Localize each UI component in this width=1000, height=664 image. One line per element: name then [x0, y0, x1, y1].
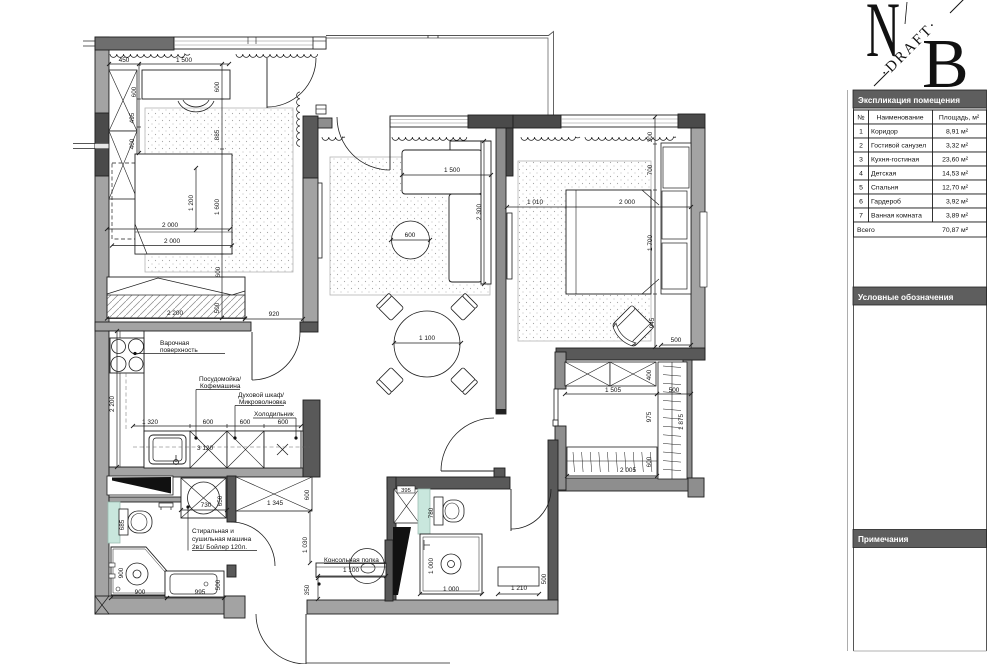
svg-text:Экспликация помещения: Экспликация помещения: [858, 96, 960, 105]
svg-text:2 000: 2 000: [619, 199, 635, 206]
svg-text:Площадь, м²: Площадь, м²: [939, 115, 980, 122]
svg-text:1: 1: [859, 129, 863, 136]
svg-text:600: 600: [278, 419, 289, 426]
svg-text:1 320: 1 320: [142, 419, 158, 426]
svg-text:600: 600: [240, 419, 251, 426]
svg-text:500: 500: [669, 387, 680, 394]
svg-text:2 200: 2 200: [109, 396, 116, 412]
svg-text:2 300: 2 300: [476, 204, 483, 220]
svg-text:1 500: 1 500: [176, 57, 192, 64]
svg-text:Кофемашина: Кофемашина: [200, 383, 241, 390]
svg-text:1 000: 1 000: [443, 586, 459, 593]
svg-text:Микроволновка: Микроволновка: [239, 399, 286, 406]
svg-text:1 030: 1 030: [302, 537, 309, 553]
svg-text:1 345: 1 345: [267, 500, 283, 507]
svg-text:2 000: 2 000: [162, 222, 178, 229]
svg-text:600: 600: [215, 266, 222, 277]
svg-text:730: 730: [201, 502, 212, 509]
svg-text:7: 7: [859, 213, 863, 220]
svg-text:400: 400: [646, 369, 653, 380]
svg-text:995: 995: [195, 589, 206, 596]
svg-text:1 000: 1 000: [428, 558, 435, 574]
svg-text:500: 500: [214, 302, 221, 313]
svg-text:700: 700: [647, 164, 654, 175]
svg-text:600: 600: [405, 232, 416, 239]
svg-text:600: 600: [214, 81, 221, 92]
svg-text:8,91 м²: 8,91 м²: [946, 129, 969, 136]
svg-text:3,32 м²: 3,32 м²: [946, 143, 969, 150]
svg-text:5: 5: [859, 185, 863, 192]
svg-text:2в1/ Бойлер 120л.: 2в1/ Бойлер 120л.: [192, 543, 247, 551]
svg-text:Гостивой санузел: Гостивой санузел: [871, 142, 926, 150]
svg-text:685: 685: [119, 519, 126, 530]
svg-text:2: 2: [859, 143, 863, 150]
svg-text:2 000: 2 000: [164, 238, 180, 245]
svg-text:6: 6: [859, 199, 863, 206]
svg-text:Спальня: Спальня: [871, 185, 899, 192]
svg-text:395: 395: [401, 488, 411, 494]
svg-text:920: 920: [269, 311, 280, 318]
svg-text:300: 300: [647, 131, 654, 142]
svg-text:600: 600: [304, 489, 311, 500]
svg-text:12,70 м²: 12,70 м²: [942, 185, 969, 192]
svg-text:Консольная полка: Консольная полка: [324, 557, 379, 564]
svg-text:Кухня-гостиная: Кухня-гостиная: [871, 157, 919, 164]
svg-text:Духовой шкаф/: Духовой шкаф/: [238, 391, 284, 399]
svg-text:600: 600: [203, 419, 214, 426]
svg-text:780: 780: [428, 507, 435, 518]
svg-text:14,53 м²: 14,53 м²: [942, 171, 969, 178]
svg-text:500: 500: [671, 337, 682, 344]
svg-text:495: 495: [129, 112, 136, 123]
svg-text:2 200: 2 200: [167, 310, 183, 317]
svg-text:2 005: 2 005: [620, 467, 636, 474]
svg-text:650: 650: [217, 495, 224, 506]
svg-text:1 010: 1 010: [527, 199, 543, 206]
svg-text:Варочная: Варочная: [160, 340, 190, 347]
svg-text:70,87 м²: 70,87 м²: [942, 227, 969, 234]
svg-text:3 120: 3 120: [197, 445, 213, 452]
svg-text:600: 600: [646, 456, 653, 467]
svg-text:№: №: [857, 115, 864, 122]
svg-text:500: 500: [215, 579, 222, 590]
svg-text:885: 885: [214, 129, 221, 140]
svg-text:Ванная комната: Ванная комната: [871, 213, 922, 220]
svg-text:Примечания: Примечания: [858, 535, 909, 544]
svg-text:Гардероб: Гардероб: [871, 198, 901, 206]
svg-text:Наименование: Наименование: [876, 115, 923, 122]
svg-text:Всего: Всего: [857, 227, 875, 234]
svg-text:Коридор: Коридор: [871, 129, 898, 136]
svg-text:900: 900: [135, 589, 146, 596]
svg-text:450: 450: [119, 57, 130, 64]
svg-text:3,89 м²: 3,89 м²: [946, 213, 969, 220]
svg-text:1 700: 1 700: [647, 235, 654, 251]
svg-text:3: 3: [859, 157, 863, 164]
svg-text:975: 975: [646, 411, 653, 422]
svg-text:1 100: 1 100: [419, 335, 435, 342]
svg-text:4: 4: [859, 171, 863, 178]
svg-text:1 100: 1 100: [343, 567, 359, 574]
svg-text:Посудомойка/: Посудомойка/: [199, 375, 241, 383]
svg-text:1 875: 1 875: [678, 414, 685, 430]
svg-text:Детская: Детская: [871, 171, 896, 178]
svg-text:сушильная машина: сушильная машина: [192, 536, 252, 543]
svg-text:400: 400: [129, 138, 136, 149]
svg-text:поверхность: поверхность: [160, 347, 198, 354]
svg-text:600: 600: [131, 86, 138, 97]
svg-text:945: 945: [649, 317, 656, 328]
svg-text:1 600: 1 600: [214, 199, 221, 215]
svg-text:1 500: 1 500: [444, 167, 460, 174]
svg-text:Условные обозначения: Условные обозначения: [858, 292, 954, 302]
svg-text:350: 350: [304, 584, 311, 595]
svg-text:900: 900: [118, 567, 125, 578]
svg-text:500: 500: [541, 573, 548, 584]
svg-text:1 210: 1 210: [511, 585, 527, 592]
svg-text:23,60 м²: 23,60 м²: [942, 157, 969, 164]
svg-text:Холодильник: Холодильник: [254, 411, 294, 418]
svg-text:Стиральная и: Стиральная и: [192, 528, 234, 535]
svg-text:3,92 м²: 3,92 м²: [946, 199, 969, 206]
svg-text:1 505: 1 505: [605, 387, 621, 394]
svg-text:1 200: 1 200: [188, 195, 195, 211]
